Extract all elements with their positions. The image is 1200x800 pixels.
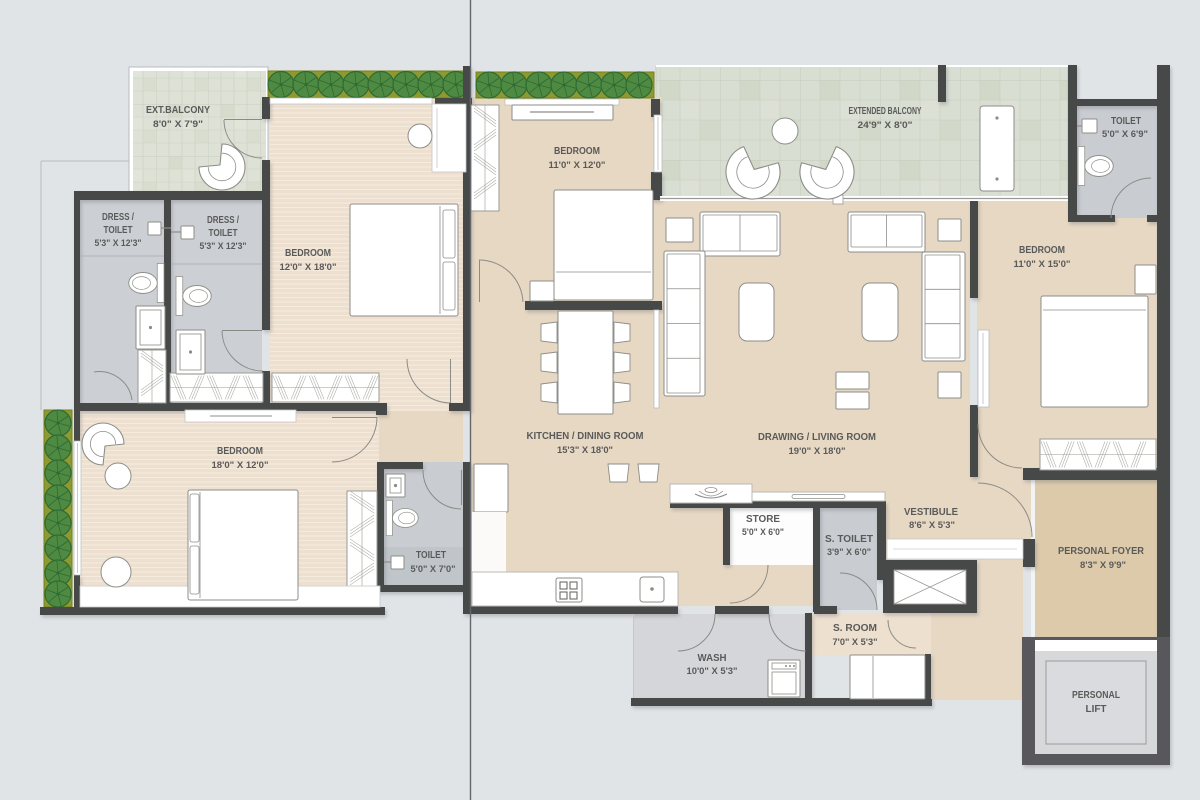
svg-text:PERSONAL: PERSONAL xyxy=(1072,689,1120,701)
svg-text:S. ROOM: S. ROOM xyxy=(833,623,877,634)
svg-text:TOILET: TOILET xyxy=(416,550,446,561)
svg-text:8'6" X 5'3": 8'6" X 5'3" xyxy=(909,520,955,530)
svg-text:12'0" X 18'0": 12'0" X 18'0" xyxy=(280,262,337,272)
svg-text:TOILET: TOILET xyxy=(104,225,133,236)
svg-text:STORE: STORE xyxy=(746,514,780,525)
svg-text:EXTENDED BALCONY: EXTENDED BALCONY xyxy=(849,105,922,117)
svg-text:11'0" X 15'0": 11'0" X 15'0" xyxy=(1014,259,1071,269)
svg-text:19'0" X 18'0": 19'0" X 18'0" xyxy=(789,446,846,456)
svg-text:3'9" X 6'0": 3'9" X 6'0" xyxy=(827,547,871,557)
svg-text:VESTIBULE: VESTIBULE xyxy=(904,507,958,518)
svg-text:5'3" X 12'3": 5'3" X 12'3" xyxy=(200,241,247,251)
svg-text:PERSONAL FOYER: PERSONAL FOYER xyxy=(1058,546,1145,557)
svg-text:8'0" X 7'9": 8'0" X 7'9" xyxy=(153,119,203,129)
svg-text:8'3" X 9'9": 8'3" X 9'9" xyxy=(1080,560,1126,570)
svg-text:5'0" X 6'0": 5'0" X 6'0" xyxy=(742,527,784,537)
svg-text:5'0" X 6'9": 5'0" X 6'9" xyxy=(1102,129,1148,139)
svg-text:EXT.BALCONY: EXT.BALCONY xyxy=(146,104,210,116)
svg-text:DRAWING / LIVING ROOM: DRAWING / LIVING ROOM xyxy=(758,431,876,443)
svg-text:TOILET: TOILET xyxy=(1111,116,1141,127)
svg-text:TOILET: TOILET xyxy=(209,228,238,239)
svg-text:BEDROOM: BEDROOM xyxy=(285,247,331,259)
svg-text:18'0" X 12'0": 18'0" X 12'0" xyxy=(212,460,269,470)
svg-text:DRESS /: DRESS / xyxy=(102,212,134,223)
svg-text:24'9" X 8'0": 24'9" X 8'0" xyxy=(858,120,913,130)
svg-text:S. TOILET: S. TOILET xyxy=(825,534,873,545)
svg-text:BEDROOM: BEDROOM xyxy=(1019,244,1065,256)
svg-text:11'0" X 12'0": 11'0" X 12'0" xyxy=(549,160,606,170)
svg-text:LIFT: LIFT xyxy=(1086,703,1108,715)
svg-text:5'0" X 7'0": 5'0" X 7'0" xyxy=(411,564,456,574)
svg-text:KITCHEN / DINING ROOM: KITCHEN / DINING ROOM xyxy=(527,430,644,442)
svg-text:BEDROOM: BEDROOM xyxy=(217,445,263,457)
svg-text:10'0" X 5'3": 10'0" X 5'3" xyxy=(687,666,738,676)
svg-text:5'3" X 12'3": 5'3" X 12'3" xyxy=(95,238,142,248)
svg-text:7'0" X 5'3": 7'0" X 5'3" xyxy=(833,637,878,647)
svg-text:WASH: WASH xyxy=(698,653,727,664)
svg-text:15'3" X 18'0": 15'3" X 18'0" xyxy=(557,445,613,455)
svg-text:BEDROOM: BEDROOM xyxy=(554,145,600,157)
svg-text:DRESS /: DRESS / xyxy=(207,215,239,226)
